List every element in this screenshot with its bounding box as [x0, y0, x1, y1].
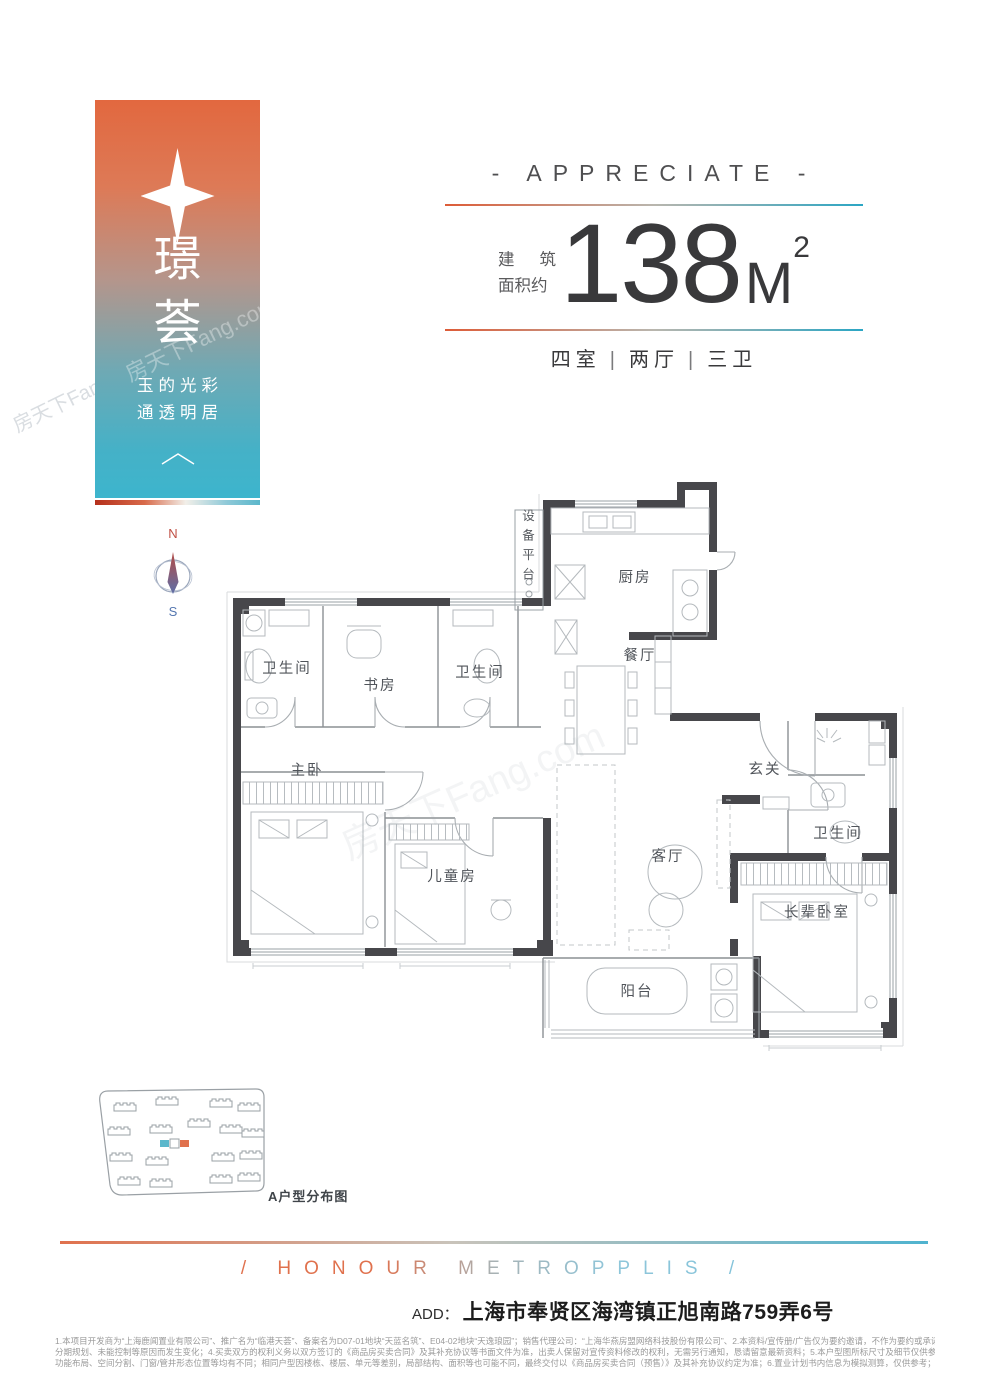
area-label-line2: 面积约 — [498, 273, 556, 299]
area-number: 138 — [560, 211, 741, 317]
site-plan-caption: A户型分布图 — [268, 1186, 348, 1205]
room-label-bathroom-2: 卫生间 — [455, 664, 505, 681]
room-label-master-bedroom: 主卧 — [291, 762, 324, 779]
banner-subtitle-line2: 通透明居 — [95, 399, 260, 423]
layout-spec: 四室|两厅|三卫 — [445, 343, 863, 372]
compass-icon: N S — [143, 524, 203, 625]
banner-subtitle-line1: 玉的光彩 — [95, 372, 260, 396]
room-label-dining: 餐厅 — [624, 647, 657, 664]
room-label-equipment-platform: 设备平台 — [518, 509, 537, 617]
banner-title: 璟荟 — [148, 228, 208, 356]
area-label-char: 建 — [498, 247, 515, 273]
room-label-bathroom-3: 卫生间 — [813, 825, 863, 842]
disclaimer-line-3: 功能布局、空间分割、门窗/管井形态位置等均有不同；相同户型因楼栋、楼层、单元等差… — [55, 1358, 935, 1369]
room-label-living-room: 客厅 — [652, 848, 685, 865]
area-label-char: 筑 — [540, 247, 557, 273]
disclaimer-line-2: 分期规划、未能控制等原因而发生变化；4.买卖双方的权利义务以双方签订的《商品房买… — [55, 1347, 935, 1358]
disclaimer-line-1: 1.本项目开发商为“上海鹿闻置业有限公司”、推广名为“临港天荟”、备案名为D07… — [55, 1336, 935, 1347]
room-label-study: 书房 — [364, 677, 397, 694]
spec-baths: 三卫 — [707, 349, 757, 371]
plan-partitions — [241, 606, 865, 1038]
address-text: 上海市奉贤区海湾镇正旭南路759弄6号 — [463, 1296, 834, 1326]
chevron-up-icon — [160, 452, 196, 471]
compass-needle — [168, 552, 179, 594]
room-label-foyer: 玄关 — [749, 761, 782, 778]
slogan-text: / HONOUR METROPPLIS / — [0, 1258, 988, 1280]
area-value: 138 M 2 — [560, 211, 810, 317]
site-highlighted-building — [160, 1139, 189, 1148]
spec-separator: | — [610, 349, 620, 371]
spec-rooms: 四室 — [551, 349, 601, 371]
compass-south-label: S — [169, 604, 178, 619]
footer-gradient-divider — [60, 1241, 928, 1244]
compass-north-label: N — [168, 526, 177, 541]
site-plan — [92, 1085, 272, 1205]
spec-halls: 两厅 — [629, 349, 679, 371]
floorplan-poster: 房天下Fang.com 璟荟 玉的光彩 通透明居 房天下Fang.com - A… — [0, 0, 988, 1400]
room-label-balcony: 阳台 — [621, 983, 654, 1000]
room-label-kids-room: 儿童房 — [427, 867, 477, 885]
floor-plan: 厨房 卫生间 书房 卫生间 餐厅 主卧 玄关 儿童房 客厅 卫生间 长辈卧室 阳… — [225, 470, 905, 1070]
eyebrow-text: - APPRECIATE - — [445, 160, 863, 187]
room-label-elder-bedroom: 长辈卧室 — [784, 904, 850, 921]
brand-banner: 璟荟 玉的光彩 通透明居 — [95, 100, 260, 498]
area-label: 建筑 面积约 — [498, 247, 556, 299]
address-row: ADD： 上海市奉贤区海湾镇正旭南路759弄6号 — [412, 1296, 834, 1326]
area-unit: M — [745, 255, 793, 313]
spec-separator: | — [688, 349, 698, 371]
address-label: ADD： — [412, 1303, 459, 1324]
area-exponent: 2 — [793, 233, 810, 263]
plan-furniture — [243, 508, 887, 1051]
gradient-divider — [445, 329, 863, 331]
room-label-kitchen: 厨房 — [619, 569, 652, 586]
room-label-bathroom-1: 卫生间 — [262, 660, 312, 677]
